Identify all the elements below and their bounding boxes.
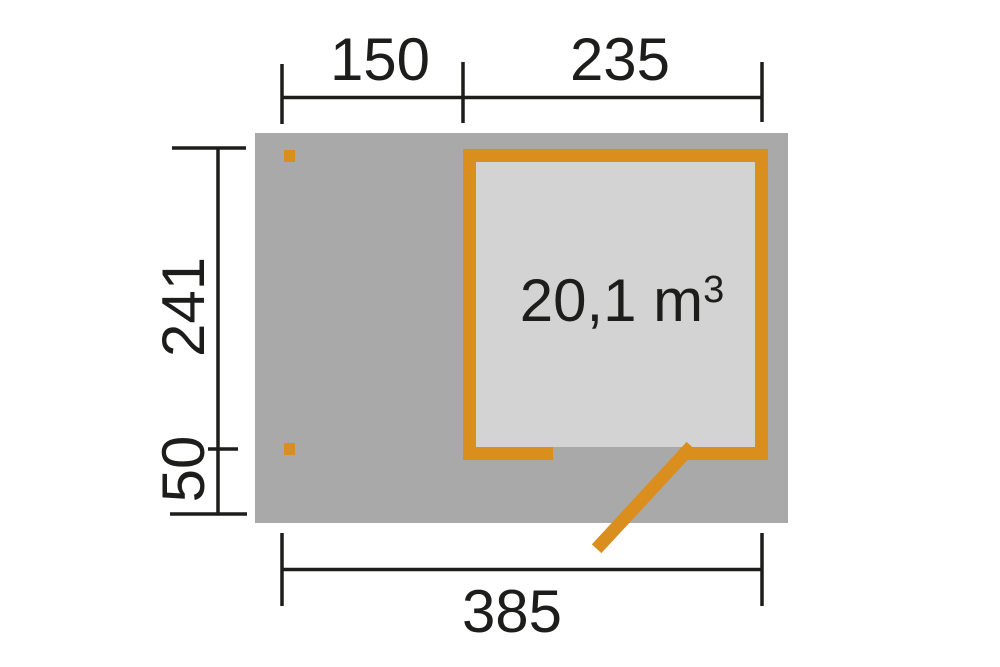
room-volume-value: 20,1 m xyxy=(520,267,703,334)
dim-label-bottom: 385 xyxy=(462,578,562,645)
post-bottom-left xyxy=(284,443,295,455)
dim-label-side-upper: 241 xyxy=(150,257,217,357)
dim-label-top-right: 235 xyxy=(570,26,670,93)
door-opening xyxy=(553,447,687,460)
room-volume-label: 20,1 m3 xyxy=(520,267,725,334)
room-volume-superscript: 3 xyxy=(703,269,724,311)
dim-label-top-left: 150 xyxy=(330,26,430,93)
dim-label-side-lower: 50 xyxy=(150,436,217,503)
floor-plan-svg: 150 235 241 50 385 20,1 m3 xyxy=(0,0,1000,667)
post-top-left xyxy=(284,150,295,162)
floor-plan: 150 235 241 50 385 20,1 m3 xyxy=(0,0,1000,667)
